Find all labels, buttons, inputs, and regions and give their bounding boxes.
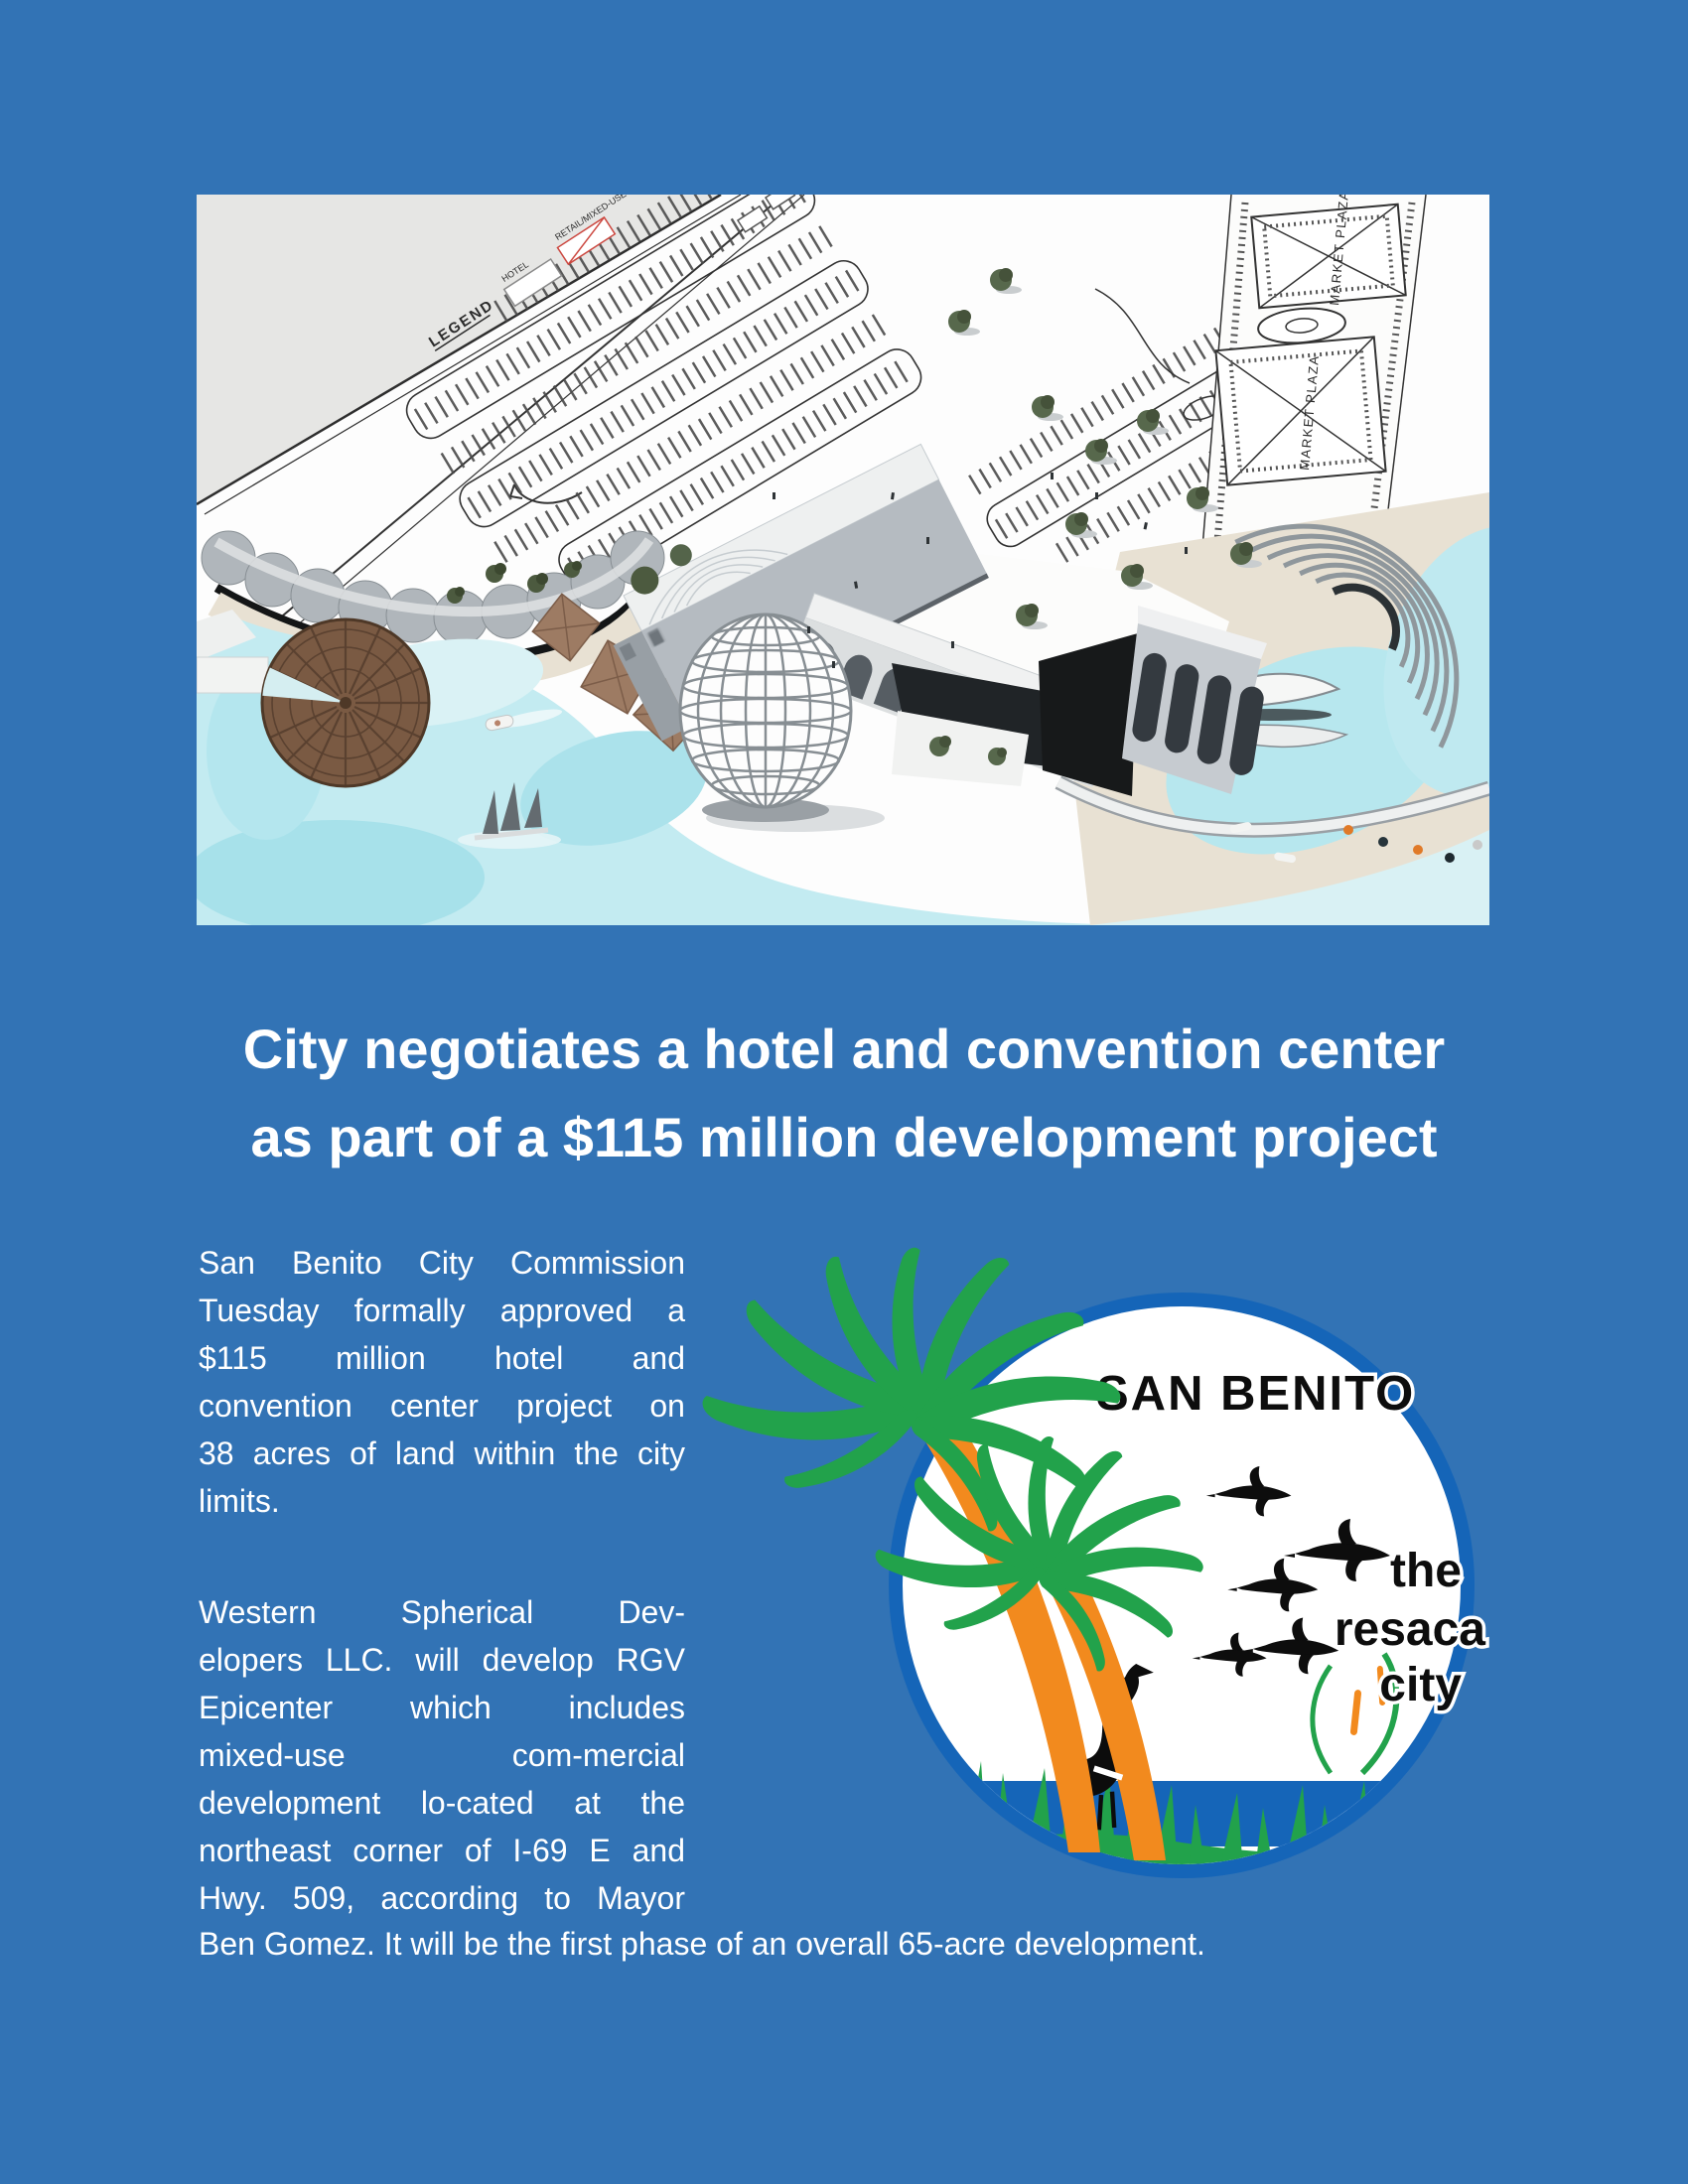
body-text-line: conventioncenterprojecton xyxy=(199,1382,685,1430)
body-text-line: Hwy.509,accordingtoMayor xyxy=(199,1874,685,1922)
headline-line-2: as part of a $115 million development pr… xyxy=(149,1093,1539,1181)
rendering-image: MARKET PLAZA MARKET PLAZA LEGEND HOTEL R… xyxy=(197,195,1489,925)
body-text-line: SanBenitoCityCommission xyxy=(199,1239,685,1287)
body-text-line: limits. xyxy=(199,1477,685,1525)
body-text-line: $115millionhoteland xyxy=(199,1334,685,1382)
rendering-svg: MARKET PLAZA MARKET PLAZA LEGEND HOTEL R… xyxy=(197,195,1489,925)
body-text-line: elopersLLC.willdevelopRGV xyxy=(199,1636,685,1684)
paragraph-1: SanBenitoCityCommission Tuesdayformallya… xyxy=(199,1239,685,1525)
logo-tagline-line-3: city xyxy=(1379,1659,1462,1711)
body-text-line: 38acresoflandwithinthecity xyxy=(199,1430,685,1477)
body-text-line: mixed-usecom-mercial xyxy=(199,1731,685,1779)
newsletter-page: MARKET PLAZA MARKET PLAZA LEGEND HOTEL R… xyxy=(0,0,1688,2184)
headline-line-1: City negotiates a hotel and convention c… xyxy=(149,1005,1539,1093)
headline: City negotiates a hotel and convention c… xyxy=(149,1005,1539,1181)
city-logo: SAN BENITO the resaca city xyxy=(667,1217,1491,1912)
wooden-disc xyxy=(262,619,429,786)
body-text-line: Tuesdayformallyapproveda xyxy=(199,1287,685,1334)
body-text-line: WesternSphericalDev- xyxy=(199,1588,685,1636)
body-text-line: developmentlo-catedatthe xyxy=(199,1779,685,1827)
logo-svg: SAN BENITO the resaca city xyxy=(667,1217,1491,1912)
paragraph-2: WesternSphericalDev- elopersLLC.willdeve… xyxy=(199,1588,685,1922)
logo-tagline-line-2: resaca xyxy=(1335,1603,1485,1656)
body-text-line: Epicenterwhichincludes xyxy=(199,1684,685,1731)
logo-city-name: SAN BENITO xyxy=(1096,1367,1415,1421)
body-text-line: northeastcornerofI-69Eand xyxy=(199,1827,685,1874)
closing-line: Ben Gomez. It will be the first phase of… xyxy=(199,1920,1509,1968)
logo-tagline-line-1: the xyxy=(1390,1545,1462,1597)
article-column: SanBenitoCityCommission Tuesdayformallya… xyxy=(199,1239,685,1922)
